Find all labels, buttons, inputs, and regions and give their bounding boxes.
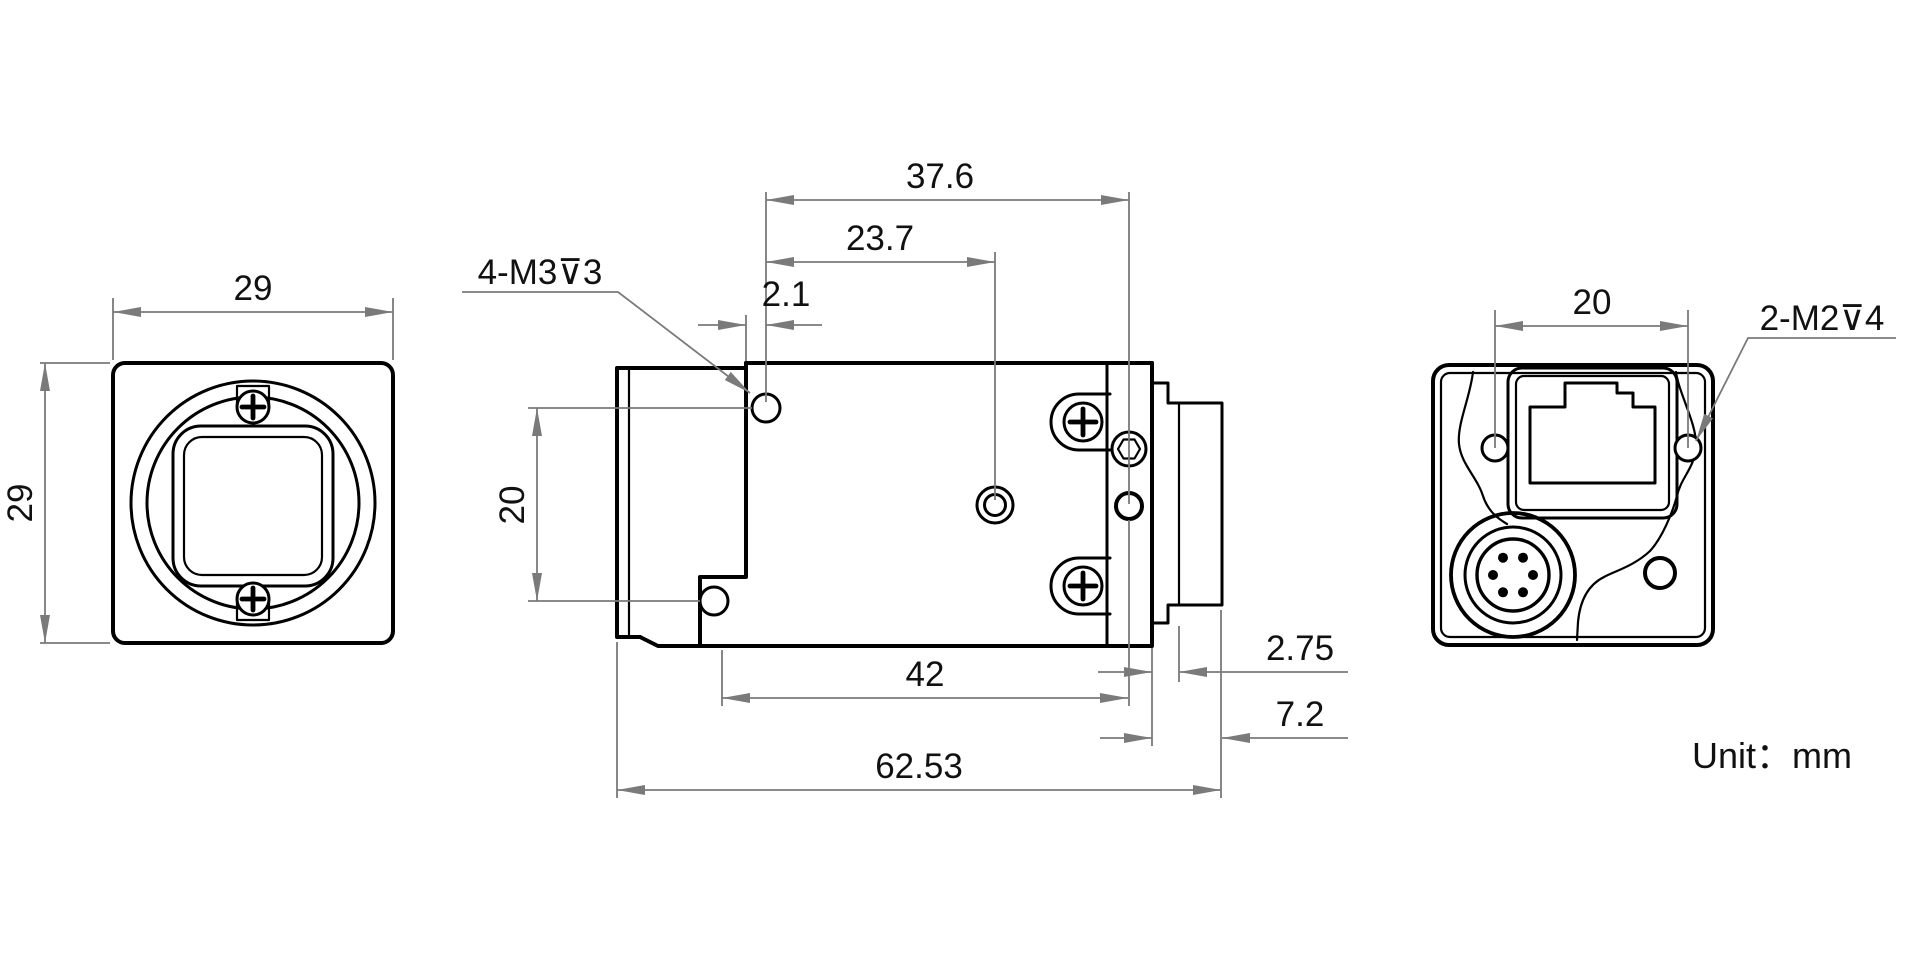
side-screw-bottom-icon — [1051, 558, 1110, 614]
ethernet-port-bezel-inner — [1516, 376, 1669, 510]
side-view: 37.6 23.7 2.1 20 42 62.53 2.75 7.2 — [462, 157, 1348, 798]
body-bottom-edge — [640, 637, 1152, 646]
front-view: 29 29 — [1, 269, 393, 643]
front-screw-top-icon — [237, 386, 269, 423]
back-thread-note-label: 2-M2⊽4 — [1760, 299, 1885, 338]
unit-label: Unit：mm — [1692, 735, 1852, 776]
dim-2-75-label: 2.75 — [1266, 629, 1334, 668]
power-connector-icon — [1451, 513, 1575, 637]
front-height-dim-label: 29 — [1, 484, 40, 523]
dim-37-6-label: 37.6 — [906, 157, 974, 196]
sensor-window-outer — [173, 426, 333, 586]
rj45-jack-icon — [1530, 383, 1655, 483]
back-view: 20 2-M2⊽4 — [1433, 283, 1896, 645]
side-hole-front-bottom — [700, 587, 728, 615]
back-body-chamfer — [1441, 373, 1705, 637]
dim-7-2-label: 7.2 — [1276, 695, 1325, 734]
side-thread-note-label: 4-M3⊽3 — [478, 253, 603, 292]
front-width-dim-label: 29 — [234, 269, 273, 308]
thread-note-leader — [462, 292, 750, 393]
sensor-window-inner — [184, 437, 322, 575]
camera-dimension-drawing: 29 29 — [0, 0, 1920, 960]
dim-62-53-label: 62.53 — [875, 747, 963, 786]
rear-connector-profile — [1152, 383, 1222, 623]
dim-2-1-label: 2.1 — [762, 275, 811, 314]
dim-20-back-label: 20 — [1573, 283, 1612, 322]
dim-20-side-label: 20 — [493, 486, 532, 525]
back-small-hole — [1645, 558, 1675, 588]
side-screw-top-icon — [1051, 394, 1110, 450]
side-dimensions: 37.6 23.7 2.1 20 42 62.53 2.75 7.2 — [462, 157, 1348, 798]
back-thread-note-leader — [1696, 338, 1896, 441]
dim-23-7-label: 23.7 — [846, 219, 914, 258]
dim-42-label: 42 — [906, 655, 945, 694]
ethernet-port-bezel — [1508, 368, 1677, 518]
camera-dimension-drawing-page: 29 29 — [0, 0, 1920, 960]
front-screw-bottom-icon — [237, 583, 269, 620]
